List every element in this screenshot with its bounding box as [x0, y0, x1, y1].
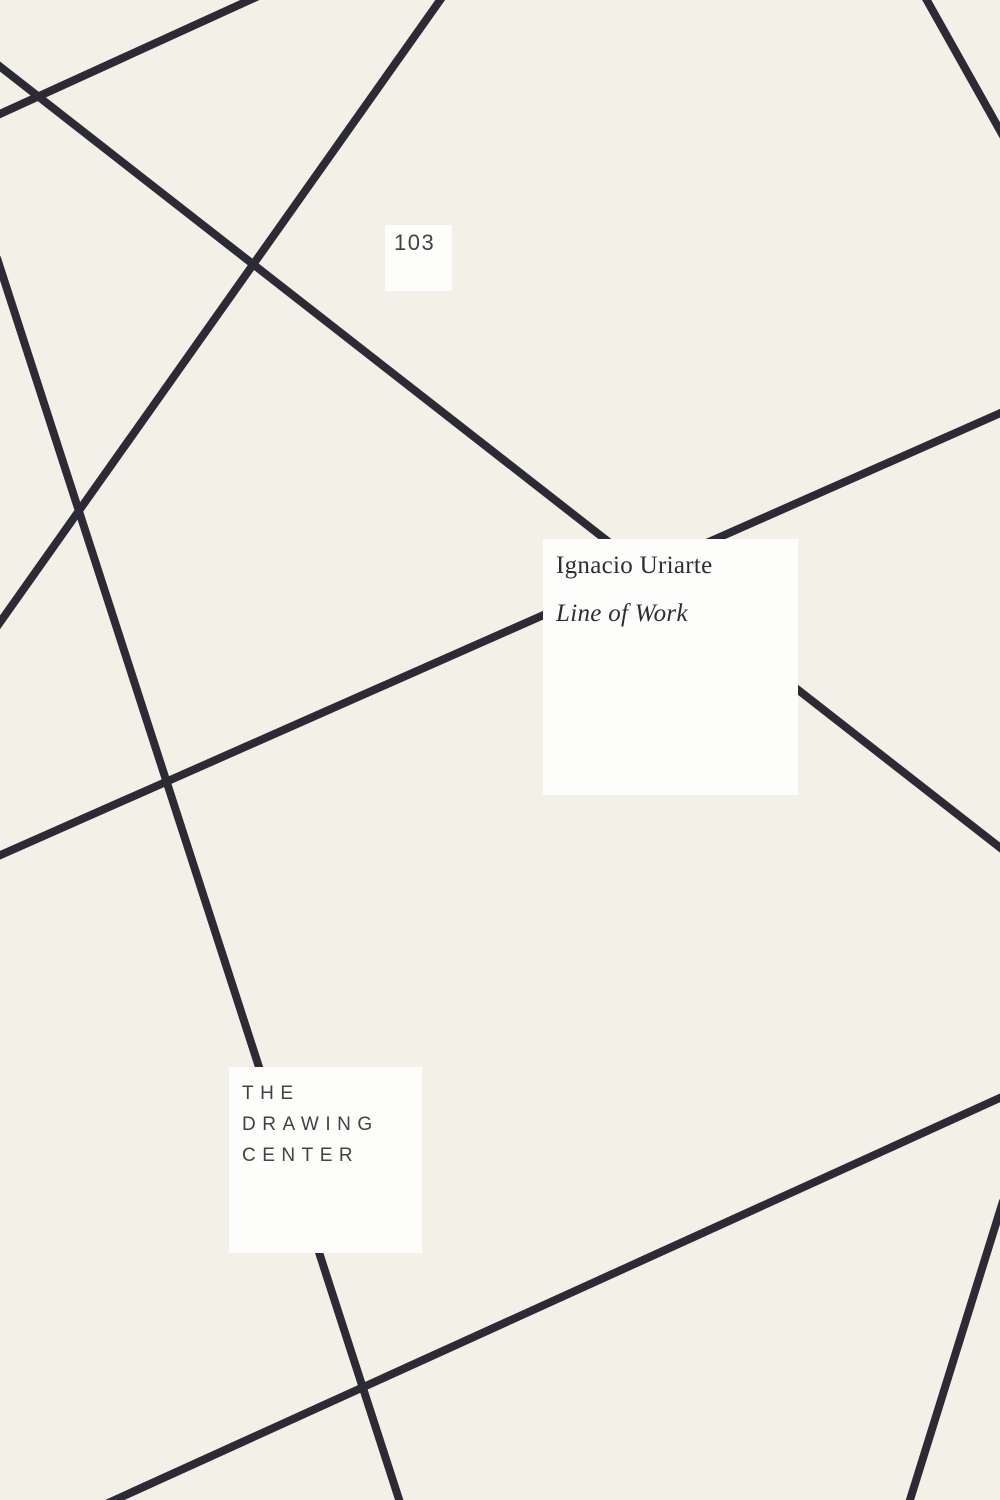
- author-name: Ignacio Uriarte: [556, 551, 798, 581]
- page-number-panel: 103: [385, 225, 452, 291]
- diagonal-line: [902, 1196, 1000, 1500]
- page-number: 103: [394, 230, 452, 256]
- book-title: Line of Work: [556, 599, 798, 629]
- publisher-line-drawing: DRAWING: [242, 1109, 422, 1140]
- book-cover: 103 Ignacio Uriarte Line of Work THE DRA…: [0, 0, 1000, 1500]
- diagonal-line: [0, 253, 407, 1500]
- title-panel: Ignacio Uriarte Line of Work: [543, 539, 798, 795]
- line-artwork: [0, 0, 1000, 1500]
- diagonal-line: [0, 404, 1000, 865]
- diagonal-line: [917, 0, 1000, 144]
- publisher-line-the: THE: [242, 1078, 422, 1109]
- publisher-line-center: CENTER: [242, 1140, 422, 1171]
- diagonal-line: [0, 0, 451, 636]
- diagonal-line: [0, 0, 264, 123]
- publisher-panel: THE DRAWING CENTER: [229, 1067, 422, 1253]
